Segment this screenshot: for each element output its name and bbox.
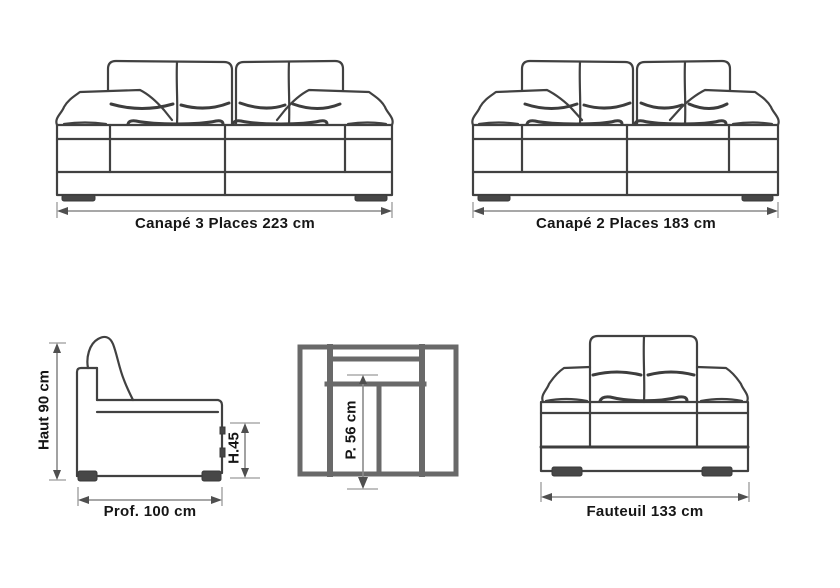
armchair-drawing [530, 325, 760, 525]
sofa-3-places-drawing [40, 40, 410, 240]
side-front-tab-top [220, 427, 225, 434]
armchair-width-arrow [541, 482, 749, 502]
diagram-canvas: Canapé 3 Places 223 cm Canapé 2 Places 1… [0, 0, 840, 588]
sofa3-foot-left [62, 195, 95, 201]
top-seat-depth-label: P. 56 cm [343, 401, 360, 460]
side-height-label: Haut 90 cm [36, 370, 53, 450]
armchair-foot-left [552, 467, 582, 476]
armchair-dimension-label: Fauteuil 133 cm [555, 503, 735, 520]
side-foot-front [202, 471, 221, 481]
sofa-2-places-drawing [455, 40, 795, 240]
side-front-tab-bottom [220, 448, 225, 457]
side-view-drawing [20, 330, 270, 530]
sofa2-dimension-label: Canapé 2 Places 183 cm [496, 215, 756, 232]
sofa2-foot-right [742, 195, 773, 201]
sofa2-foot-left [478, 195, 510, 201]
armchair-foot-right [702, 467, 732, 476]
side-depth-label: Prof. 100 cm [70, 503, 230, 520]
top-view-drawing [290, 338, 475, 498]
side-armrest-height-label: H.45 [226, 432, 243, 464]
side-foot-back [78, 471, 97, 481]
sofa3-dimension-label: Canapé 3 Places 223 cm [95, 215, 355, 232]
sofa3-foot-right [355, 195, 387, 201]
